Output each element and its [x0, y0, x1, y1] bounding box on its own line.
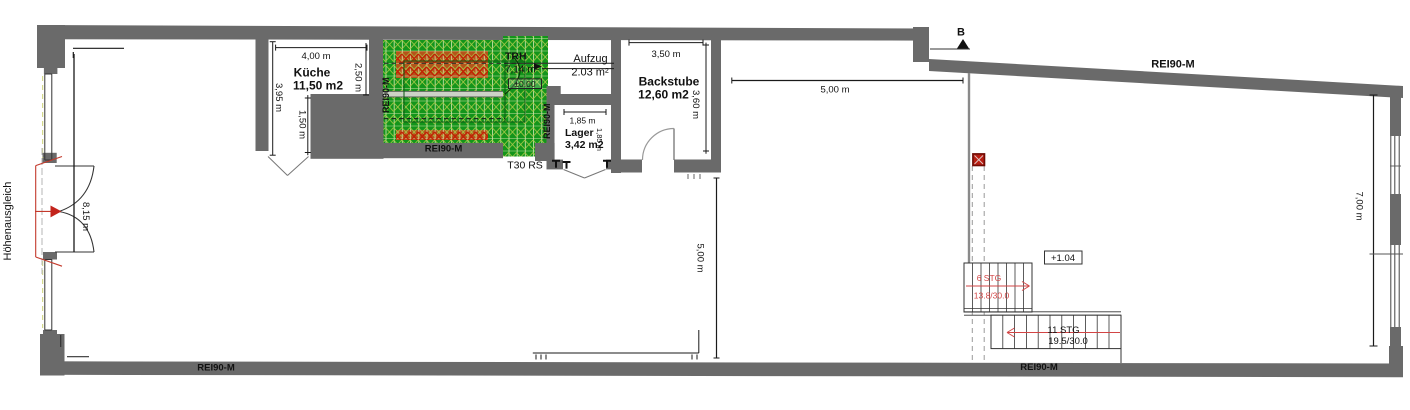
svg-text:1,85 m: 1,85 m	[595, 128, 604, 151]
svg-text:Küche: Küche	[294, 66, 331, 80]
svg-text:Lager: Lager	[565, 127, 594, 139]
svg-text:REI90-M: REI90-M	[542, 103, 552, 139]
svg-text:1,50 m: 1,50 m	[297, 110, 308, 139]
svg-text:REI90-M: REI90-M	[1020, 362, 1058, 373]
svg-text:3,50 m: 3,50 m	[651, 49, 680, 60]
svg-text:7,00 m: 7,00 m	[1354, 192, 1365, 221]
svg-text:2,50 m: 2,50 m	[353, 63, 364, 92]
svg-text:12,60 m2: 12,60 m2	[638, 88, 689, 102]
svg-text:6 STG: 6 STG	[977, 273, 1002, 283]
svg-text:TRH: TRH	[505, 51, 527, 63]
svg-text:B: B	[957, 27, 965, 39]
svg-text:Aufzug: Aufzug	[573, 53, 607, 65]
svg-text:8,15 m: 8,15 m	[80, 202, 91, 231]
svg-text:REI90-M: REI90-M	[197, 363, 235, 374]
svg-text:3,60 m: 3,60 m	[690, 90, 701, 119]
svg-text:13.8/30.0: 13.8/30.0	[974, 291, 1010, 301]
svg-text:REI90-M: REI90-M	[425, 144, 463, 155]
svg-text:2.03 m²: 2.03 m²	[571, 67, 609, 79]
svg-text:5,00 m: 5,00 m	[820, 85, 849, 96]
svg-text:+1.04: +1.04	[1051, 253, 1075, 264]
svg-text:5,00 m: 5,00 m	[695, 244, 706, 273]
svg-text:11,50 m2: 11,50 m2	[293, 79, 343, 93]
svg-text:T30 RS: T30 RS	[507, 160, 543, 172]
svg-text:11 STG: 11 STG	[1047, 325, 1079, 336]
svg-text:REI90-M: REI90-M	[1151, 59, 1194, 71]
svg-text:3,95 m: 3,95 m	[273, 83, 284, 112]
svg-text:4,00 m: 4,00 m	[301, 51, 330, 62]
svg-text:19.5/30.0: 19.5/30.0	[1048, 336, 1088, 347]
svg-text:1,85 m: 1,85 m	[570, 116, 596, 126]
svg-text:Höhenausgleich: Höhenausgleich	[2, 182, 14, 261]
svg-text:REI90-M: REI90-M	[381, 77, 391, 113]
svg-text:Backstube: Backstube	[639, 75, 700, 89]
svg-text:±0.00: ±0.00	[514, 79, 535, 89]
